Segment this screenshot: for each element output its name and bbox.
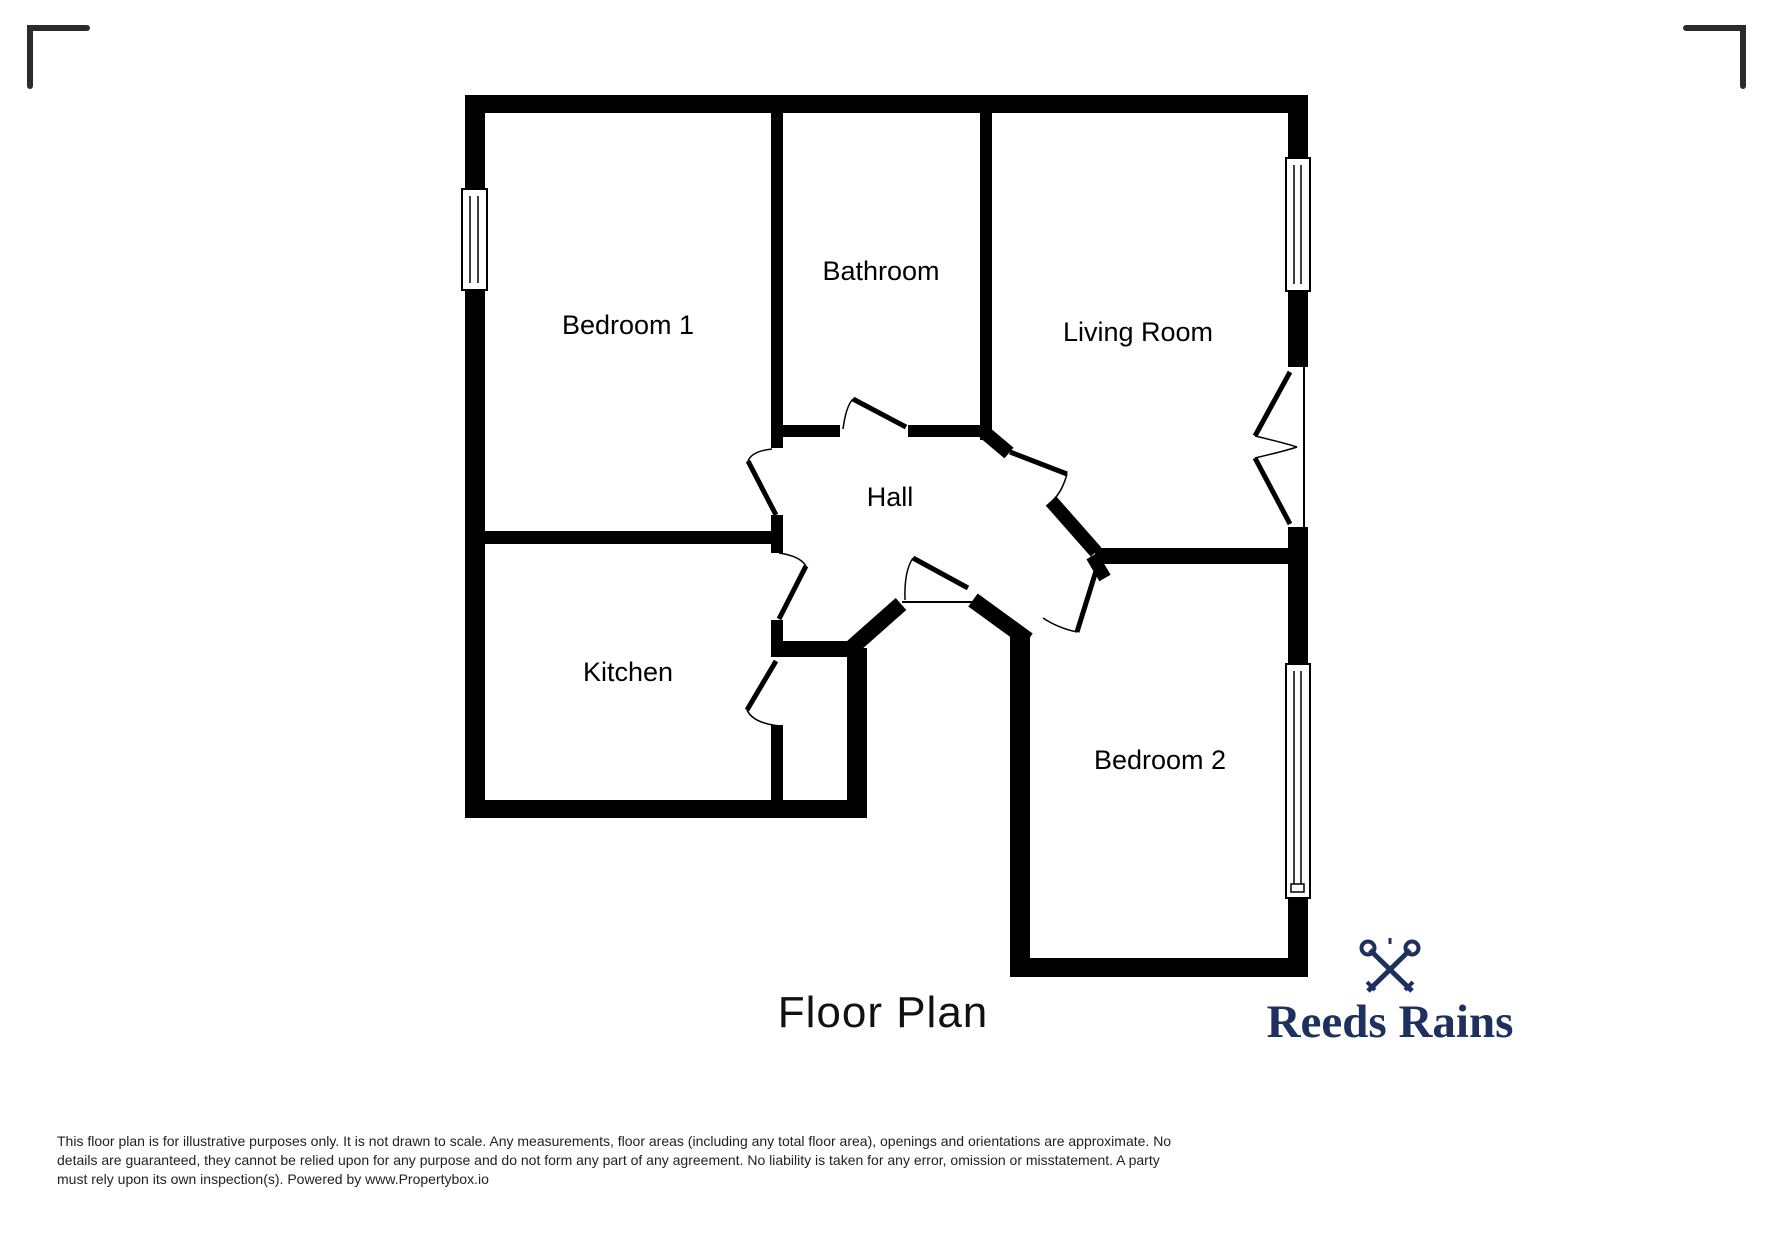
page-title: Floor Plan bbox=[778, 988, 989, 1037]
disclaimer-line-2: details are guaranteed, they cannot be r… bbox=[57, 1152, 1160, 1168]
walls bbox=[465, 95, 1308, 977]
door-storage bbox=[747, 661, 779, 726]
floor-plan-page: Bedroom 1 Bathroom Living Room Hall Kitc… bbox=[0, 0, 1771, 1239]
wall-outer-top bbox=[465, 95, 1308, 113]
wall-splay-southeast bbox=[973, 600, 1028, 640]
wall-kitchen-vestibule bbox=[771, 725, 783, 802]
floor-plan-drawing: Bedroom 1 Bathroom Living Room Hall Kitc… bbox=[0, 0, 1771, 1239]
room-label-bathroom: Bathroom bbox=[822, 256, 939, 286]
door-bathroom bbox=[843, 399, 906, 429]
window-bedroom1 bbox=[462, 189, 487, 290]
corner-mark-top-right bbox=[1686, 28, 1743, 86]
wall-splay-southwest bbox=[849, 604, 901, 650]
wall-bathroom-bottom-right bbox=[908, 425, 992, 437]
door-bedroom2 bbox=[1043, 571, 1096, 632]
room-label-kitchen: Kitchen bbox=[583, 657, 673, 687]
room-label-living-room: Living Room bbox=[1063, 317, 1213, 347]
door-french-living-room bbox=[1255, 367, 1304, 527]
wall-stub-hall-left-lower bbox=[771, 620, 783, 657]
window-bedroom2 bbox=[1286, 664, 1310, 898]
door-living-room bbox=[1010, 452, 1067, 500]
wall-vestibule-top bbox=[783, 641, 850, 657]
wall-bedroom1-bathroom bbox=[771, 113, 783, 448]
wall-bedroom1-kitchen bbox=[485, 531, 771, 544]
wall-bathroom-living bbox=[980, 113, 992, 440]
room-label-bedroom2: Bedroom 2 bbox=[1094, 745, 1226, 775]
wall-bedroom2-left bbox=[1010, 637, 1030, 977]
wall-outer-right-1 bbox=[1288, 95, 1308, 161]
crossed-keys-icon bbox=[1362, 938, 1419, 991]
wall-splay-northeast bbox=[1051, 501, 1096, 552]
wall-outer-left-lower bbox=[465, 288, 485, 818]
door-bedroom1 bbox=[748, 449, 776, 515]
wall-outer-right-2 bbox=[1288, 290, 1308, 367]
wall-bedroom2-bottom bbox=[1010, 958, 1308, 977]
door-entrance bbox=[902, 558, 973, 602]
wall-vestibule-right bbox=[847, 648, 867, 810]
disclaimer: This floor plan is for illustrative purp… bbox=[57, 1133, 1171, 1187]
room-label-hall: Hall bbox=[867, 482, 914, 512]
corner-mark-top-left bbox=[30, 28, 87, 86]
window-living-room bbox=[1286, 158, 1310, 291]
room-label-bedroom1: Bedroom 1 bbox=[562, 310, 694, 340]
door-kitchen bbox=[779, 553, 806, 619]
room-labels: Bedroom 1 Bathroom Living Room Hall Kitc… bbox=[562, 256, 1226, 775]
disclaimer-line-1: This floor plan is for illustrative purp… bbox=[57, 1133, 1171, 1149]
wall-outer-left-upper bbox=[465, 95, 485, 192]
wall-bathroom-bottom-left bbox=[771, 425, 840, 437]
wall-stub-hall-left-upper bbox=[771, 515, 783, 553]
disclaimer-line-3: must rely upon its own inspection(s). Po… bbox=[57, 1171, 489, 1187]
brand-name: Reeds Rains bbox=[1267, 996, 1514, 1048]
wall-splay-northeast-stub bbox=[984, 432, 1009, 453]
wall-bedroom2-top bbox=[1095, 548, 1308, 564]
wall-outer-bottom-left bbox=[465, 800, 867, 818]
